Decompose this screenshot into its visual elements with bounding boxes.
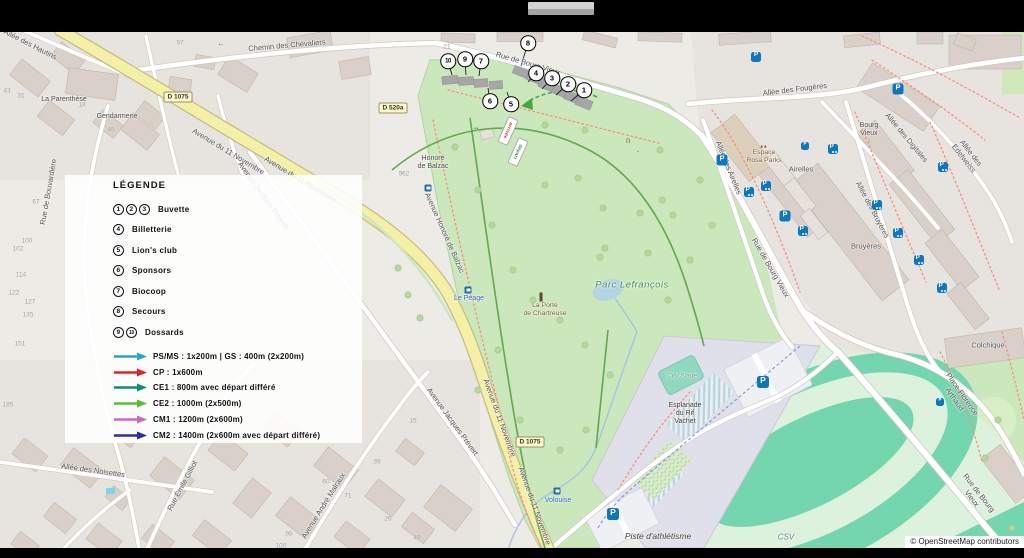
legend-route-label: CE1 : 800m avec départ différé [153,383,276,392]
legend-item-label: Sponsors [132,266,171,275]
legend-item-label: Lion's club [132,246,177,255]
route-arrow-icon [113,383,147,392]
building [441,33,475,43]
tree [583,427,589,433]
event-stand [458,76,474,85]
event-stand [442,75,459,84]
tree [557,447,563,453]
tree [502,127,508,133]
legend-route-cp: CP : 1x600m [113,364,362,380]
legend-item-biocoop: 7Biocoop [113,281,362,302]
top-bar [0,0,1024,32]
attribution-text[interactable]: © OpenStreetMap contributors [910,537,1019,546]
legend-circled-number: 4 [113,224,124,235]
tree [405,292,411,298]
tree [475,187,481,193]
legend-item-secours: 8Secours [113,302,362,323]
legend-route-cm2: CM2 : 1400m (2x600m avec départ différé) [113,427,362,443]
legend-circled-number: 3 [139,204,150,215]
legend-circled-number: 6 [113,265,124,276]
swimming-pool [106,488,115,494]
legend-item-sponsors: 6Sponsors [113,261,362,282]
tree [510,267,516,273]
tree [495,347,501,353]
map-screenshot: Allée des HautinsChemin des ChevaliersRu… [0,0,1024,558]
tree [575,175,581,181]
legend-item-lion-s-club: 5Lion's club [113,240,362,261]
legend-item-label: Biocoop [132,287,166,296]
tree [657,147,663,153]
tree [995,417,1001,423]
legend-circled-number: 2 [126,204,137,215]
tree [607,372,613,378]
tree [1009,525,1015,531]
legend-item-buvette: 123Buvette [113,199,362,220]
tree [417,315,423,321]
legend-route-label: CP : 1x600m [153,368,203,377]
legend-item-dossards: 910Dossards [113,322,362,343]
tree [557,317,563,323]
tree [582,342,588,348]
window-artifact [528,2,594,15]
event-stand [489,81,503,90]
legend-items: 123Buvette4Billetterie5Lion's club6Spons… [113,199,362,343]
legend-circled-number: 5 [113,245,124,256]
building [497,33,543,42]
building [638,32,682,43]
legend-route-label: CE2 : 1000m (2x500m) [153,399,242,408]
building [917,32,943,44]
tree [530,297,536,303]
tree [697,177,703,183]
legend-item-label: Billetterie [132,225,172,234]
legend-panel: LÉGENDE 123Buvette4Billetterie5Lion's cl… [65,175,362,443]
tree [637,210,643,216]
legend-route-ce2: CE2 : 1000m (2x500m) [113,396,362,412]
legend-route-ce1: CE1 : 800m avec départ différé [113,380,362,396]
route-arrow-icon [113,415,147,424]
tree [582,127,588,133]
tree [489,222,495,228]
tree [395,265,401,271]
tree [665,297,671,303]
legend-circled-number: 7 [113,286,124,297]
tree [602,245,608,251]
tree [709,222,715,228]
legend-route-label: CM1 : 1200m (2x600m) [153,415,243,424]
legend-route-label: PS/MS : 1x200m | GS : 400m (2x200m) [153,352,304,361]
map-attribution[interactable]: © OpenStreetMap contributors [905,536,1024,548]
legend-item-label: Buvette [158,205,189,214]
tree [659,197,665,203]
legend-item-label: Secours [132,307,166,316]
tree [645,250,651,256]
route-arrow-icon [113,352,147,361]
legend-title: LÉGENDE [113,180,362,191]
route-arrow-icon [113,399,147,408]
tree [982,455,988,461]
legend-route-psms: PS/MS : 1x200m | GS : 400m (2x200m) [113,349,362,365]
tree [542,122,548,128]
route-arrow-icon [113,431,147,440]
tree [670,212,676,218]
tree [475,387,481,393]
legend-routes: PS/MS : 1x200m | GS : 400m (2x200m)CP : … [113,349,362,444]
legend-route-label: CM2 : 1400m (2x600m avec départ différé) [153,431,320,440]
tree [517,417,523,423]
route-arrow-icon [113,368,147,377]
tree [687,257,693,263]
event-stand [474,79,489,88]
tree [597,254,603,260]
tree [600,205,606,211]
legend-circled-number: 9 [113,327,124,338]
tree [452,144,458,150]
legend-item-label: Dossards [145,328,184,337]
legend-route-cm1: CM1 : 1200m (2x600m) [113,412,362,428]
tree [512,159,518,165]
legend-item-billetterie: 4Billetterie [113,220,362,241]
bottom-bar [0,548,1024,558]
tree [542,182,548,188]
legend-circled-number: 8 [113,306,124,317]
legend-circled-number: 1 [113,204,124,215]
legend-circled-number: 10 [126,327,137,338]
